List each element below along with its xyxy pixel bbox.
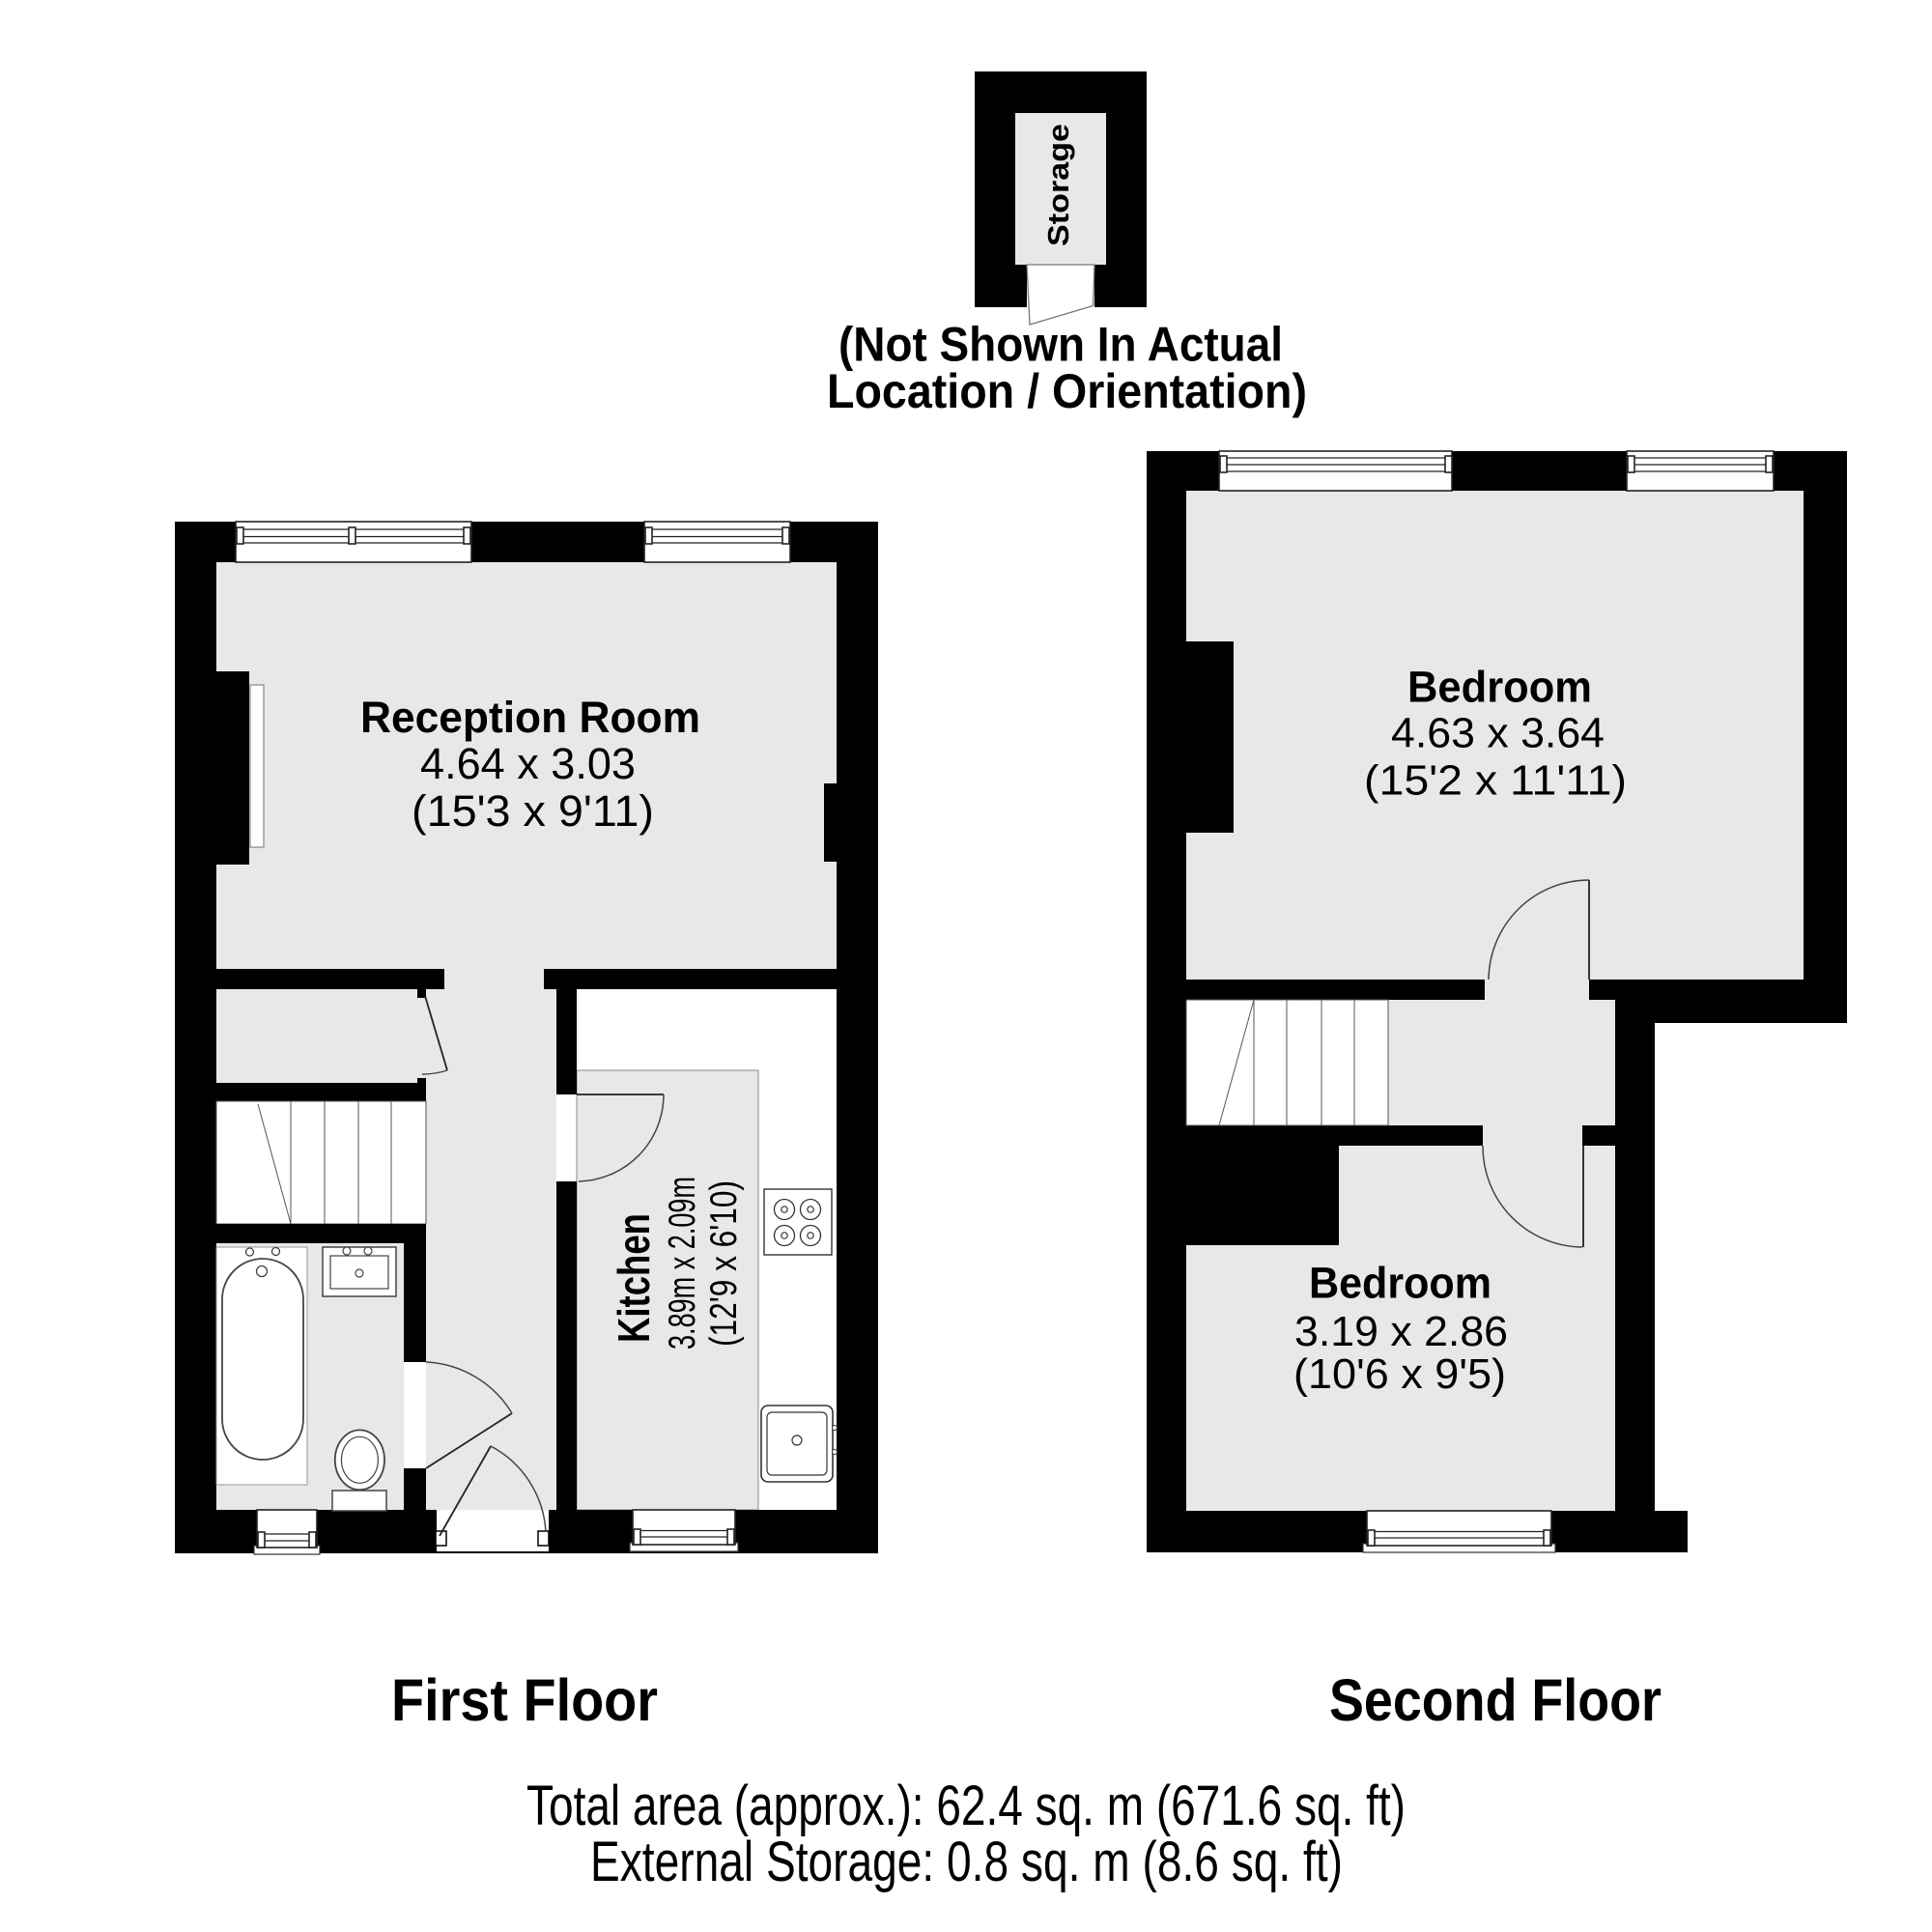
svg-text:Kitchen: Kitchen bbox=[609, 1213, 659, 1343]
svg-text:3.89m x 2.09m: 3.89m x 2.09m bbox=[662, 1177, 703, 1350]
svg-text:4.63 x 3.64: 4.63 x 3.64 bbox=[1391, 710, 1605, 757]
svg-text:(12'9 x 6'10): (12'9 x 6'10) bbox=[703, 1180, 745, 1347]
svg-text:Bedroom: Bedroom bbox=[1309, 1259, 1492, 1308]
svg-text:(15'3 x 9'11): (15'3 x 9'11) bbox=[412, 786, 654, 836]
svg-text:4.64 x 3.03: 4.64 x 3.03 bbox=[420, 739, 636, 788]
svg-text:3.19 x 2.86: 3.19 x 2.86 bbox=[1294, 1308, 1508, 1355]
svg-text:Reception Room: Reception Room bbox=[360, 693, 700, 742]
svg-text:Second Floor: Second Floor bbox=[1329, 1667, 1662, 1733]
svg-text:External Storage: 0.8 sq. m (8: External Storage: 0.8 sq. m (8.6 sq. ft) bbox=[590, 1831, 1343, 1893]
svg-text:First Floor: First Floor bbox=[391, 1667, 658, 1733]
svg-text:Total area (approx.): 62.4 sq.: Total area (approx.): 62.4 sq. m (671.6 … bbox=[526, 1775, 1406, 1837]
svg-text:(15'2 x 11'11): (15'2 x 11'11) bbox=[1364, 757, 1627, 805]
svg-text:(10'6 x 9'5): (10'6 x 9'5) bbox=[1293, 1350, 1506, 1398]
svg-text:Bedroom: Bedroom bbox=[1407, 663, 1592, 712]
svg-text:Location / Orientation): Location / Orientation) bbox=[827, 364, 1307, 418]
svg-text:Storage: Storage bbox=[1041, 124, 1075, 246]
